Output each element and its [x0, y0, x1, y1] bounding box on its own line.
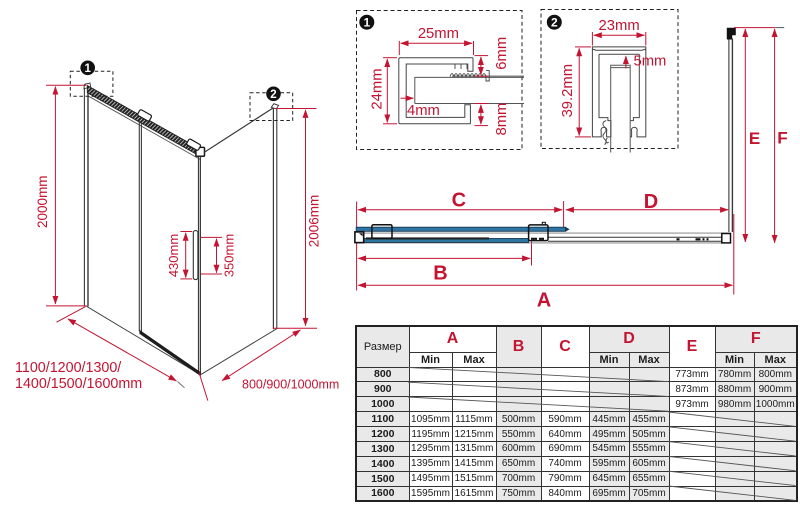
svg-text:4mm: 4mm — [407, 103, 440, 119]
svg-text:2: 2 — [551, 15, 558, 29]
svg-text:5mm: 5mm — [634, 54, 667, 70]
svg-text:1400/1500/1600mm: 1400/1500/1600mm — [15, 376, 142, 392]
svg-text:C: C — [452, 190, 466, 212]
svg-text:D: D — [644, 191, 658, 213]
svg-text:E: E — [749, 129, 760, 148]
svg-text:25mm: 25mm — [418, 26, 459, 42]
svg-text:39.2mm: 39.2mm — [560, 64, 576, 117]
svg-text:24mm: 24mm — [370, 68, 386, 109]
svg-text:6mm: 6mm — [494, 37, 510, 70]
svg-text:8mm: 8mm — [494, 103, 510, 136]
svg-text:350mm: 350mm — [222, 234, 237, 277]
svg-text:A: A — [537, 289, 551, 311]
svg-text:2: 2 — [270, 89, 276, 101]
svg-text:1: 1 — [363, 15, 370, 29]
svg-text:F: F — [777, 128, 787, 147]
svg-text:2000mm: 2000mm — [35, 175, 50, 228]
svg-text:1100/1200/1300/: 1100/1200/1300/ — [15, 360, 121, 376]
svg-text:B: B — [433, 262, 447, 284]
svg-text:23mm: 23mm — [599, 18, 640, 34]
svg-text:1: 1 — [84, 63, 91, 75]
svg-text:800/900/1000mm: 800/900/1000mm — [242, 378, 339, 392]
svg-text:430mm: 430mm — [166, 234, 181, 277]
svg-text:2006mm: 2006mm — [307, 195, 322, 248]
